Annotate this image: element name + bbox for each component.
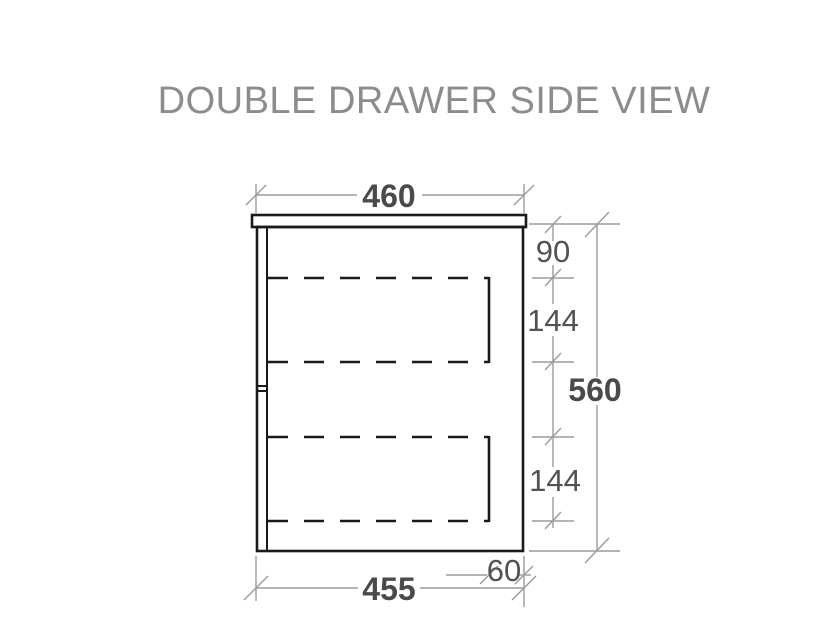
lower-drawer-hidden-outline bbox=[268, 436, 489, 522]
cabinet-outline bbox=[252, 215, 526, 551]
dim-label-top-gap: 90 bbox=[536, 234, 570, 269]
dimension-top-width: 460 bbox=[246, 178, 534, 214]
technical-drawing: DOUBLE DRAWER SIDE VIEW bbox=[0, 0, 818, 630]
dim-label-top-width: 460 bbox=[362, 178, 415, 214]
cabinet-carcass bbox=[257, 227, 523, 551]
drawing-canvas: DOUBLE DRAWER SIDE VIEW bbox=[0, 0, 818, 630]
dim-label-upper-drawer: 144 bbox=[527, 303, 579, 338]
dim-label-rear-gap: 60 bbox=[487, 553, 521, 588]
dimension-overall-height: 560 bbox=[568, 212, 621, 563]
dimension-rear-gap: 60 bbox=[446, 553, 533, 588]
cabinet-top-panel bbox=[252, 215, 526, 227]
upper-drawer-hidden-outline bbox=[268, 277, 489, 363]
dim-label-overall-height: 560 bbox=[568, 372, 621, 408]
dim-label-lower-drawer: 144 bbox=[529, 463, 581, 498]
dim-label-bottom-width: 455 bbox=[362, 571, 415, 607]
drawing-title: DOUBLE DRAWER SIDE VIEW bbox=[158, 80, 711, 122]
